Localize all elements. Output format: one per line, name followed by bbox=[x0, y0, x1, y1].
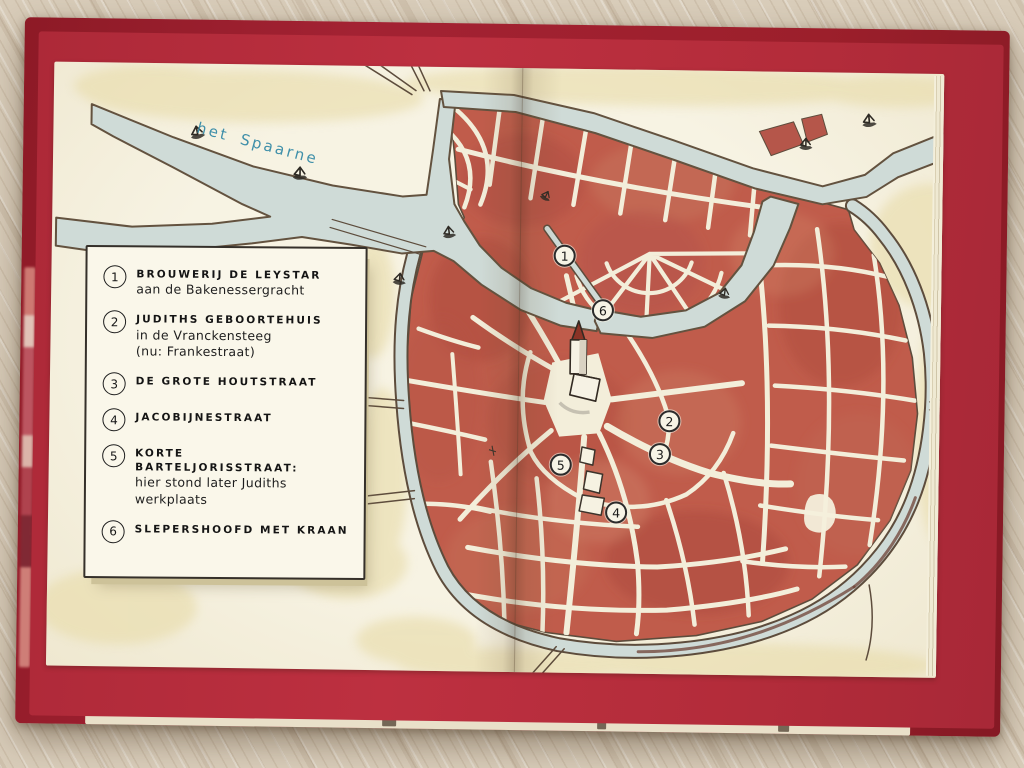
legend-item-text: JUDITHS GEBOORTEHUIS in de Vranckensteeg… bbox=[136, 313, 323, 361]
legend-item-number: 6 bbox=[102, 520, 125, 543]
legend-item-number: 4 bbox=[102, 408, 125, 431]
legend-item-text: KORTE BARTELJORISSTRAAT: hier stond late… bbox=[135, 446, 350, 508]
legend-item-number: 2 bbox=[103, 311, 126, 334]
legend-item-number: 5 bbox=[102, 444, 125, 467]
legend-item: 6 SLEPERSHOOFD MET KRAAN bbox=[102, 522, 350, 545]
map-pages: het Spaarne 1 BROUWERIJ DE LEYSTAR aan d… bbox=[46, 62, 944, 678]
legend-item-title: KORTE BARTELJORISSTRAAT: bbox=[135, 446, 350, 476]
legend-item-detail: aan de Bakenessergracht bbox=[136, 282, 321, 300]
legend-item-detail: werkplaats bbox=[135, 491, 350, 509]
legend-item-text: JACOBIJNESTRAAT bbox=[135, 410, 272, 425]
legend-item-detail: hier stond later Judiths bbox=[135, 475, 350, 493]
legend-item: 5 KORTE BARTELJORISSTRAAT: hier stond la… bbox=[102, 446, 350, 509]
legend-item-title: DE GROTE HOUTSTRAAT bbox=[136, 374, 318, 389]
outer-blocks bbox=[759, 113, 828, 156]
legend-item-detail: in de Vranckensteeg bbox=[136, 327, 323, 345]
legend-item-number: 3 bbox=[103, 372, 126, 395]
sailboat-icon bbox=[293, 167, 308, 180]
legend-item: 3 DE GROTE HOUTSTRAAT bbox=[103, 374, 351, 397]
legend-item-number: 1 bbox=[103, 265, 126, 288]
legend-item-title: BROUWERIJ DE LEYSTAR bbox=[136, 267, 321, 282]
legend-item: 4 JACOBIJNESTRAAT bbox=[102, 410, 350, 433]
open-book: het Spaarne 1 BROUWERIJ DE LEYSTAR aan d… bbox=[15, 17, 1010, 737]
legend-item-title: SLEPERSHOOFD MET KRAAN bbox=[135, 522, 349, 538]
legend-item: 2 JUDITHS GEBOORTEHUIS in de Vranckenste… bbox=[103, 313, 351, 361]
map-legend: 1 BROUWERIJ DE LEYSTAR aan de Bakenesser… bbox=[83, 245, 367, 580]
legend-item-detail: (nu: Frankestraat) bbox=[136, 343, 323, 361]
map-marker: 3 bbox=[649, 443, 671, 465]
legend-item-title: JUDITHS GEBOORTEHUIS bbox=[136, 313, 323, 328]
legend-item-text: SLEPERSHOOFD MET KRAAN bbox=[135, 522, 349, 538]
legend-item-title: JACOBIJNESTRAAT bbox=[135, 410, 272, 425]
sailboat-icon bbox=[862, 114, 877, 128]
legend-item-text: DE GROTE HOUTSTRAAT bbox=[136, 374, 318, 389]
legend-item-text: BROUWERIJ DE LEYSTAR aan de Bakenessergr… bbox=[136, 267, 321, 299]
legend-item: 1 BROUWERIJ DE LEYSTAR aan de Bakenesser… bbox=[103, 267, 351, 299]
